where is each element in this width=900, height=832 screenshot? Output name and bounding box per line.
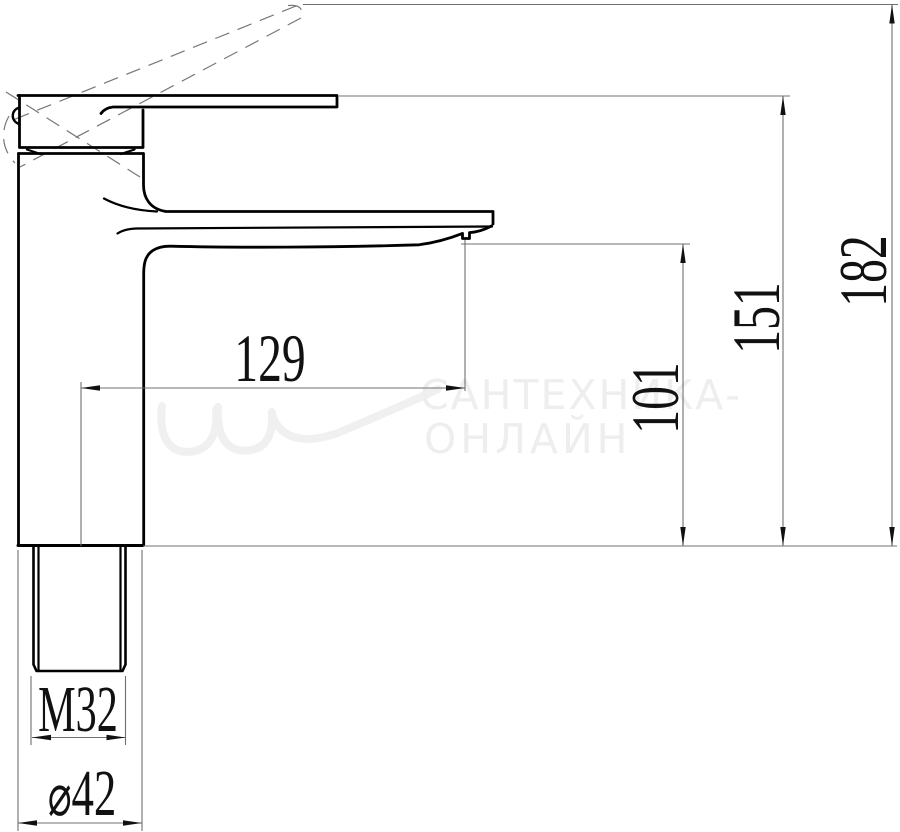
dim-label-thread: M32	[38, 673, 118, 746]
dim-label-base-diameter: ⌀42	[48, 758, 117, 831]
arrowhead	[680, 527, 685, 546]
dim-label-spout-height: 101	[618, 362, 693, 433]
arrowhead	[18, 820, 37, 825]
dimension-labels: 129 101 151 182 M32 ⌀42	[38, 235, 900, 830]
arrowhead	[780, 527, 785, 546]
spout-inner-lip	[118, 227, 493, 234]
diameter-value: 42	[71, 758, 116, 831]
dim-label-overall-height: 182	[826, 235, 900, 306]
watermark-swirl-icon	[161, 406, 216, 452]
raised-handle-block-edge	[6, 92, 140, 177]
raised-handle-tip-arc	[288, 5, 302, 18]
spout-top	[144, 154, 494, 225]
faucet-technical-drawing: САНТЕХНИКА- ОНЛАЙН	[0, 0, 900, 832]
diameter-symbol-icon: ⌀	[48, 761, 72, 829]
raised-handle-outline	[4, 5, 302, 177]
handle-block	[20, 96, 144, 148]
watermark-line2: ОНЛАЙН	[424, 415, 631, 463]
watermark-swirl-icon	[272, 389, 438, 439]
watermark-swirl-icon	[218, 407, 272, 451]
arrowhead	[123, 820, 142, 825]
dim-label-spout-reach: 129	[234, 321, 305, 396]
raised-handle-bottom-edge	[20, 18, 301, 167]
drawing-canvas: САНТЕХНИКА- ОНЛАЙН	[0, 0, 900, 832]
arrowhead	[889, 527, 894, 546]
arrowhead	[780, 96, 785, 115]
watermark-line1: САНТЕХНИКА-	[420, 371, 742, 419]
arrowhead	[81, 385, 100, 390]
arrowhead	[889, 5, 894, 24]
raised-handle-top-edge	[8, 6, 296, 122]
shank-outer	[34, 546, 126, 671]
dim-label-height-to-handle: 151	[719, 282, 794, 353]
raised-handle-left-arc	[4, 116, 15, 163]
arrowhead	[680, 244, 685, 263]
